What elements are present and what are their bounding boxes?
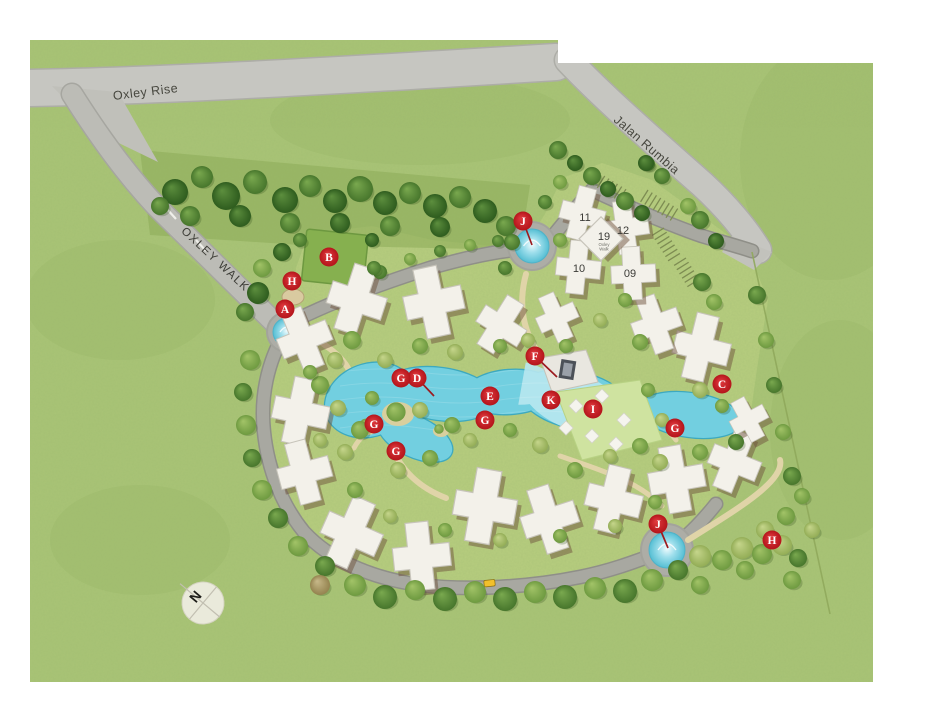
marker-letter: H: [768, 535, 777, 547]
site-plan-map: Oxley Rise OXLEY WALK Jalan Rumbia 11121…: [0, 0, 943, 717]
marker-letter: C: [718, 379, 726, 391]
building-label-11: 11: [579, 212, 590, 224]
marker-H: H: [763, 531, 782, 550]
marker-B: B: [320, 248, 339, 267]
marker-letter: G: [370, 419, 379, 431]
marker-K: K: [542, 391, 561, 410]
building-sublabel: OxleyWalk: [599, 242, 611, 252]
site-plan-page: Oxley Rise OXLEY WALK Jalan Rumbia 11121…: [0, 0, 943, 717]
marker-letter: G: [481, 415, 490, 427]
marker-letter: D: [413, 373, 421, 385]
marker-letter: F: [531, 351, 538, 363]
marker-letter: G: [392, 446, 401, 458]
marker-letter: I: [591, 404, 596, 416]
marker-G: G: [387, 442, 406, 461]
marker-letter: A: [281, 304, 290, 316]
marker-letter: E: [486, 391, 494, 403]
marker-letter: G: [397, 373, 406, 385]
marker-A: A: [276, 300, 295, 319]
marker-G: G: [392, 369, 411, 388]
marker-H: H: [283, 272, 302, 291]
building-label-12: 12: [617, 225, 629, 237]
marker-I: I: [584, 400, 603, 419]
marker-G: G: [476, 411, 495, 430]
marker-C: C: [713, 375, 732, 394]
building-label-10: 10: [573, 263, 585, 275]
building-label-09: 09: [624, 268, 636, 280]
marker-G: G: [365, 415, 384, 434]
marker-letter: K: [547, 395, 556, 407]
marker-letter: B: [325, 252, 333, 264]
marker-letter: G: [671, 423, 680, 435]
marker-letter: J: [520, 216, 526, 228]
marker-G: G: [666, 419, 685, 438]
marker-letter: H: [288, 276, 297, 288]
marker-letter: J: [655, 519, 661, 531]
marker-E: E: [481, 387, 500, 406]
